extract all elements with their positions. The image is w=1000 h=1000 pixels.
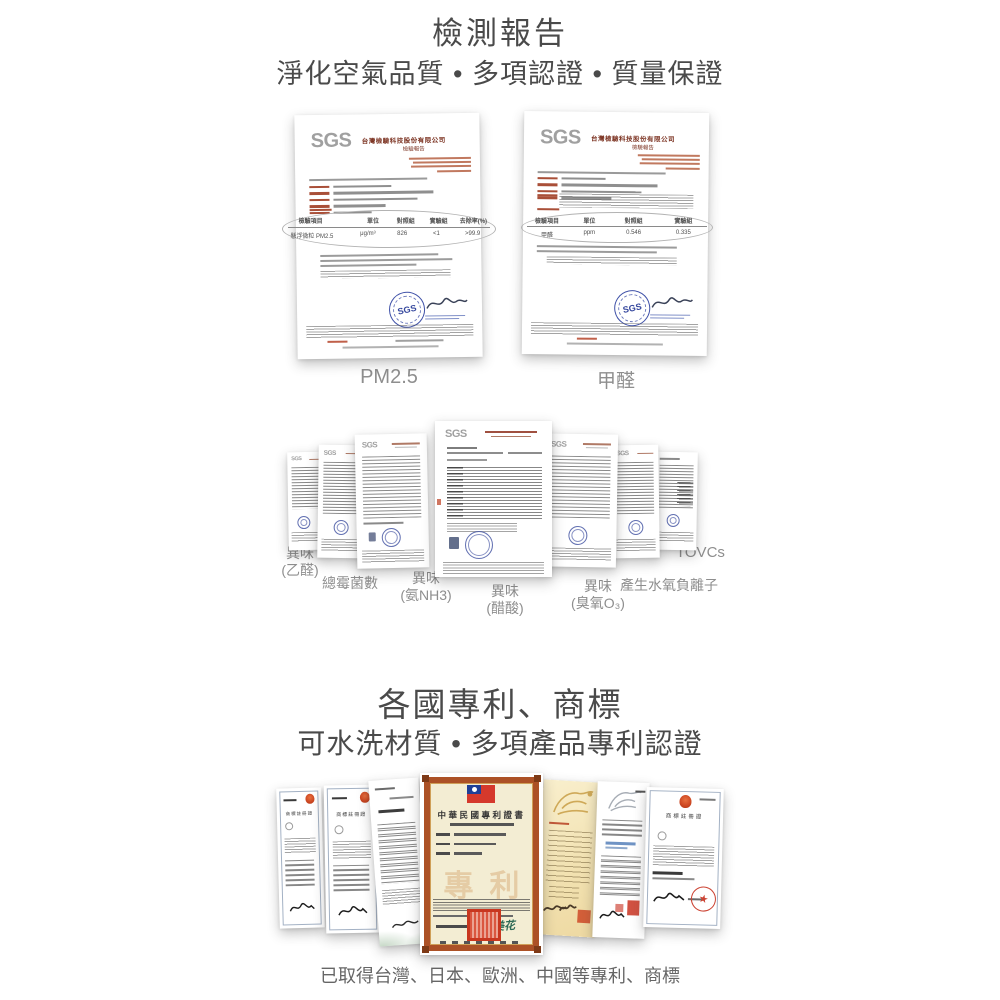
text-lines bbox=[537, 250, 657, 253]
product-detail-page: { "detection": { "title": "檢測報告", "subti… bbox=[0, 0, 1000, 1000]
red-seal bbox=[627, 900, 640, 915]
text-lines bbox=[425, 318, 459, 320]
fine-print-lines bbox=[362, 549, 424, 563]
blue-text-line bbox=[605, 846, 627, 849]
border-corner bbox=[534, 775, 541, 782]
fine-print-lines bbox=[321, 539, 361, 552]
cert-label-formaldehyde: 甲醛 bbox=[561, 366, 671, 393]
text-lines bbox=[537, 245, 677, 248]
sgs-logo: SGS bbox=[291, 457, 301, 463]
text-lines bbox=[447, 452, 503, 454]
sgs-logo: SGS bbox=[551, 440, 567, 448]
text-lines bbox=[333, 865, 369, 894]
text-lines bbox=[447, 459, 487, 461]
fan-certificate-3: SGS bbox=[355, 433, 430, 568]
patent-certificate-cn-trademark-1: 商標註冊證 bbox=[276, 787, 325, 928]
signature-icon bbox=[390, 916, 421, 933]
patent-certificate-cn-trademark-3: 商標註冊證 ★ bbox=[643, 787, 724, 929]
sgs-round-stamp bbox=[297, 516, 310, 529]
sgs-round-stamp bbox=[667, 514, 680, 527]
blue-text-line bbox=[606, 841, 636, 845]
text-lines bbox=[320, 258, 452, 262]
text-lines bbox=[333, 841, 371, 860]
text-lines bbox=[650, 317, 684, 319]
trademark-cert-title: 商標註冊證 bbox=[277, 810, 322, 817]
border-corner bbox=[534, 946, 541, 953]
signature-icon bbox=[425, 293, 469, 316]
date-line bbox=[440, 941, 524, 944]
heraldic-figure-icon bbox=[547, 784, 597, 821]
certification-mark bbox=[369, 532, 376, 541]
text-lines bbox=[549, 822, 569, 825]
text-lines bbox=[653, 845, 715, 867]
border-corner bbox=[422, 775, 429, 782]
text-lines bbox=[395, 339, 443, 341]
certification-mark bbox=[449, 537, 459, 549]
text-lines bbox=[392, 442, 420, 444]
text-lines bbox=[485, 431, 537, 433]
report-number-block bbox=[636, 154, 700, 169]
sgs-round-stamp bbox=[568, 526, 587, 545]
cert-label-pm25: PM2.5 bbox=[334, 366, 444, 389]
signature-icon bbox=[598, 907, 627, 924]
fan-label-6: 產生水氧負離子 bbox=[618, 577, 720, 594]
fan-certificate-6: SGS bbox=[611, 445, 660, 559]
text-lines bbox=[650, 314, 690, 316]
text-lines bbox=[320, 253, 438, 256]
text-lines bbox=[375, 787, 395, 790]
text-lines bbox=[425, 315, 465, 317]
fine-print-lines bbox=[657, 532, 693, 543]
patent-certificate-bird bbox=[592, 781, 649, 939]
text-lines bbox=[320, 264, 416, 267]
fine-print-lines bbox=[617, 539, 656, 552]
result-table-pm25: 檢驗項目 單位 對照組 實驗組 去除率(%) 懸浮微粒 PM2.5 μg/m³ … bbox=[282, 210, 496, 248]
text-lines bbox=[377, 822, 419, 885]
sgs-logo: SGS bbox=[540, 127, 581, 147]
text-lines bbox=[577, 338, 597, 340]
fan-label-2: 總霉菌數 bbox=[310, 575, 390, 592]
patents-caption: 已取得台灣、日本、歐洲、中國等專利、商標 bbox=[0, 962, 1000, 988]
table-column bbox=[677, 482, 693, 506]
taiwan-flag-icon bbox=[467, 785, 495, 803]
patent-cert-title: 中華民國專利證書 bbox=[420, 809, 543, 821]
text-lines bbox=[283, 799, 296, 802]
section-title-detection: 檢測報告 bbox=[0, 8, 1000, 53]
sgs-round-stamp bbox=[334, 520, 349, 535]
text-lines bbox=[583, 443, 611, 445]
china-emblem-icon bbox=[305, 794, 314, 804]
text-lines bbox=[547, 256, 677, 265]
sgs-logo: SGS bbox=[362, 441, 378, 449]
text-lines bbox=[362, 455, 421, 518]
sgs-logo: SGS bbox=[445, 429, 467, 440]
table-data-row: 甲醛 ppm 0.546 0.335 bbox=[525, 230, 709, 239]
patent-fields bbox=[436, 833, 528, 859]
table-header-row: 檢驗項目 單位 對照組 實驗組 去除率(%) bbox=[286, 216, 491, 225]
patent-certificate-taiwan: 中華民國專利證書 專利 王美花 bbox=[420, 773, 543, 955]
fine-print-lines bbox=[443, 562, 544, 574]
sgs-round-stamp bbox=[382, 528, 401, 547]
text-lines bbox=[291, 467, 321, 509]
text-lines bbox=[395, 446, 417, 448]
text-lines bbox=[491, 436, 531, 438]
text-lines bbox=[285, 860, 315, 887]
method-paragraph-lines bbox=[559, 193, 693, 208]
result-section-label bbox=[537, 208, 559, 210]
signature-icon bbox=[288, 900, 316, 917]
certificate-title-line bbox=[378, 809, 404, 814]
text-lines bbox=[586, 447, 608, 449]
text-lines bbox=[343, 345, 439, 348]
text-lines bbox=[538, 171, 666, 174]
text-lines bbox=[635, 790, 645, 792]
text-lines bbox=[546, 830, 593, 885]
text-lines bbox=[700, 798, 716, 800]
red-seal bbox=[577, 910, 591, 924]
fan-certificate-5: SGS bbox=[542, 433, 618, 567]
text-lines bbox=[332, 797, 347, 800]
fan-certificate-7 bbox=[654, 452, 698, 551]
text-lines bbox=[549, 886, 580, 900]
sgs-round-stamp bbox=[628, 520, 643, 535]
table-divider bbox=[288, 227, 489, 228]
text-lines bbox=[447, 447, 477, 449]
text-lines bbox=[327, 341, 347, 343]
text-lines bbox=[550, 455, 611, 518]
signature-icon bbox=[650, 292, 694, 314]
field-label-column bbox=[447, 467, 463, 519]
table-divider bbox=[527, 226, 708, 227]
red-edge-mark bbox=[437, 499, 441, 505]
result-table-formaldehyde: 檢驗項目 單位 對照組 實驗組 甲醛 ppm 0.546 0.335 bbox=[521, 212, 713, 243]
sgs-logo: SGS bbox=[324, 451, 336, 458]
text-lines bbox=[363, 522, 403, 524]
patent-number-line bbox=[450, 823, 514, 826]
text-lines bbox=[616, 462, 654, 515]
fine-print-lines bbox=[306, 324, 473, 338]
china-emblem-icon bbox=[679, 795, 691, 808]
text-lines bbox=[320, 269, 450, 279]
text-lines bbox=[309, 177, 427, 181]
text-lines bbox=[389, 796, 413, 800]
table-header-row: 檢驗項目 單位 對照組 實驗組 bbox=[525, 216, 709, 225]
sgs-round-stamp bbox=[465, 531, 493, 559]
section-title-patents: 各國專利、商標 bbox=[0, 678, 1000, 726]
text-lines bbox=[602, 819, 643, 838]
text-lines bbox=[637, 453, 653, 455]
field-label bbox=[537, 194, 557, 196]
fan-label-4: 異味(醋酸) bbox=[473, 583, 537, 617]
certificate-doc-title: 檢驗報告 bbox=[362, 144, 466, 153]
sgs-logo: SGS bbox=[616, 451, 628, 458]
border-corner bbox=[422, 946, 429, 953]
report-number-block bbox=[407, 157, 471, 172]
sgs-logo: SGS bbox=[311, 131, 352, 152]
signature-icon bbox=[652, 889, 686, 908]
section-subtitle-patents: 可水洗材質 • 多項產品專利認證 bbox=[0, 722, 1000, 762]
text-lines bbox=[660, 458, 680, 460]
text-lines bbox=[508, 452, 542, 454]
stamp-script-icon bbox=[558, 900, 579, 915]
fine-print-lines bbox=[547, 547, 611, 561]
section-subtitle-detection: 淨化空氣品質 • 多項認證 • 質量保證 bbox=[0, 52, 1000, 91]
official-red-seal bbox=[467, 909, 501, 941]
table-data-row: 懸浮微粒 PM2.5 μg/m³ 826 <1 >99.9 bbox=[286, 231, 491, 240]
fan-certificate-4-center: SGS bbox=[435, 421, 552, 577]
text-lines bbox=[284, 838, 315, 855]
signature-icon bbox=[337, 903, 369, 922]
certificate-doc-title: 檢驗報告 bbox=[591, 143, 695, 152]
fine-print-lines bbox=[531, 322, 698, 336]
text-lines bbox=[567, 342, 663, 345]
text-lines bbox=[600, 855, 641, 898]
